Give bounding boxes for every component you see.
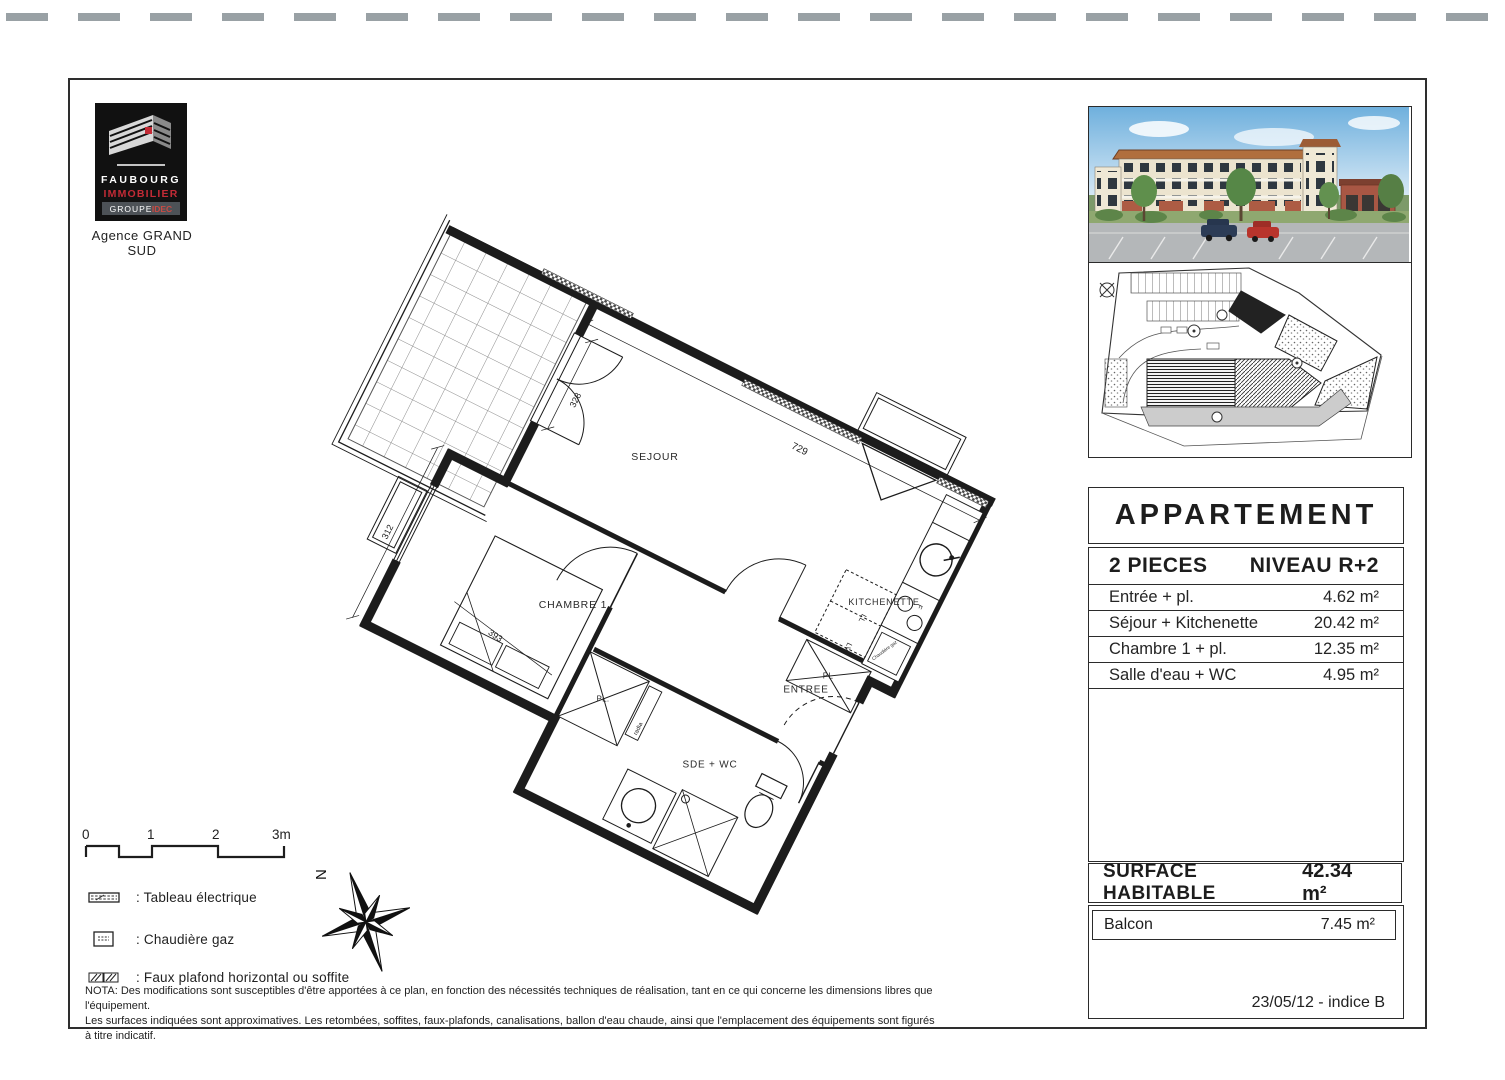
compass-north-letter: N — [313, 869, 330, 880]
legend-label: : Chaudière gaz — [136, 932, 234, 947]
chambre-window — [365, 470, 437, 562]
apartment-floor-plan: 729 328 312 393 LL LV F radia Chaudière … — [70, 205, 1020, 915]
nota-disclaimer: NOTA: Des modifications sont susceptible… — [85, 984, 935, 1044]
site-plan-drawing — [1089, 263, 1409, 454]
room-label-sde: SDE + WC — [682, 760, 737, 771]
room-label-chambre: CHAMBRE 1 — [539, 599, 607, 611]
balcony-value: 7.45 m² — [1321, 916, 1375, 934]
dim-sejour-width: 729 — [789, 441, 809, 459]
nota-line-2: Les surfaces indiquées sont approximativ… — [85, 1014, 935, 1044]
dim-chambre-width: 393 — [486, 627, 504, 644]
chambre-door — [557, 527, 638, 608]
washer-label: LL — [857, 613, 869, 624]
parking-row — [1131, 273, 1241, 293]
unit-type: 2 PIECES — [1109, 554, 1208, 578]
scanner-binding-marks — [6, 13, 1500, 21]
closet-label-entree: PL — [823, 672, 833, 681]
legend-item-electrical-panel: : Tableau électrique — [88, 890, 257, 905]
table-row: Entrée + pl. 4.62 m² — [1089, 585, 1403, 611]
chambre-closet — [558, 652, 664, 753]
building-icon — [109, 115, 171, 155]
legend-label: : Tableau électrique — [136, 890, 257, 905]
closet-label-chambre: PL. — [597, 695, 610, 704]
surface-label: SURFACE HABITABLE — [1103, 861, 1302, 905]
main-building — [1095, 139, 1341, 217]
row-label: Séjour + Kitchenette — [1109, 614, 1258, 633]
scale-tick-3: 3m — [272, 827, 291, 842]
building-render — [1089, 107, 1409, 262]
row-value: 4.95 m² — [1323, 666, 1379, 685]
sejour-door — [725, 538, 806, 619]
logo-brand-top: FAUBOURG — [101, 174, 181, 186]
balcony-terrace — [332, 214, 602, 521]
balcony-and-revision-box: Balcon 7.45 m² 23/05/12 - indice B — [1088, 905, 1404, 1019]
row-label: Salle d'eau + WC — [1109, 666, 1236, 685]
areas-table: 2 PIECES NIVEAU R+2 Entrée + pl. 4.62 m²… — [1088, 547, 1404, 862]
site-plan — [1088, 262, 1412, 458]
false-ceiling-icon — [88, 971, 122, 985]
scale-tick-0: 0 — [82, 827, 90, 842]
row-label: Chambre 1 + pl. — [1109, 640, 1227, 659]
scanned-floor-plan-page: FAUBOURG IMMOBILIER GROUPE IDEC Agence G… — [0, 0, 1505, 1080]
room-label-kitchenette: KITCHENETTE — [848, 597, 919, 607]
row-value: 12.35 m² — [1314, 640, 1379, 659]
row-label: Entrée + pl. — [1109, 588, 1194, 607]
interior-walls — [420, 482, 899, 849]
room-label-sejour: SEJOUR — [631, 451, 678, 463]
dim-chambre-depth: 312 — [380, 523, 396, 541]
site-compass-icon — [1100, 283, 1114, 297]
table-row: Salle d'eau + WC 4.95 m² — [1089, 663, 1403, 689]
table-header-row: 2 PIECES NIVEAU R+2 — [1089, 548, 1403, 585]
faubourg-immobilier-logo: FAUBOURG IMMOBILIER GROUPE IDEC — [95, 103, 187, 221]
table-row: Chambre 1 + pl. 12.35 m² — [1089, 637, 1403, 663]
logo-graphic: FAUBOURG IMMOBILIER GROUPE IDEC — [95, 103, 187, 221]
legend-item-gas-boiler: : Chaudière gaz — [88, 930, 234, 948]
scale-tick-1: 1 — [147, 827, 155, 842]
revision-date: 23/05/12 - indice B — [1252, 994, 1385, 1012]
gas-boiler-icon — [88, 930, 122, 948]
habitable-surface-box: SURFACE HABITABLE 42.34 m² — [1088, 863, 1402, 903]
nota-line-1: NOTA: Des modifications sont susceptible… — [85, 984, 935, 1014]
logo-brand-bottom: IMMOBILIER — [104, 188, 179, 200]
scale-bar: 0 1 2 3m — [80, 826, 320, 870]
building-photo — [1088, 106, 1412, 266]
apartment-title: APPARTEMENT — [1115, 499, 1378, 532]
exterior-walls — [235, 226, 995, 915]
unit-level: NIVEAU R+2 — [1250, 554, 1379, 578]
washbasin — [603, 769, 676, 843]
balcony-label: Balcon — [1104, 916, 1153, 934]
surface-value: 42.34 m² — [1302, 860, 1377, 906]
scale-tick-2: 2 — [212, 827, 220, 842]
electrical-panel-icon — [88, 891, 122, 905]
table-row: Séjour + Kitchenette 20.42 m² — [1089, 611, 1403, 637]
balcony-row: Balcon 7.45 m² — [1092, 910, 1396, 940]
room-label-entree: ENTREE — [783, 685, 828, 696]
north-compass: N — [300, 858, 430, 983]
apartment-title-box: APPARTEMENT — [1088, 487, 1404, 544]
toilet — [739, 774, 787, 833]
row-value: 20.42 m² — [1314, 614, 1379, 633]
row-value: 4.62 m² — [1323, 588, 1379, 607]
